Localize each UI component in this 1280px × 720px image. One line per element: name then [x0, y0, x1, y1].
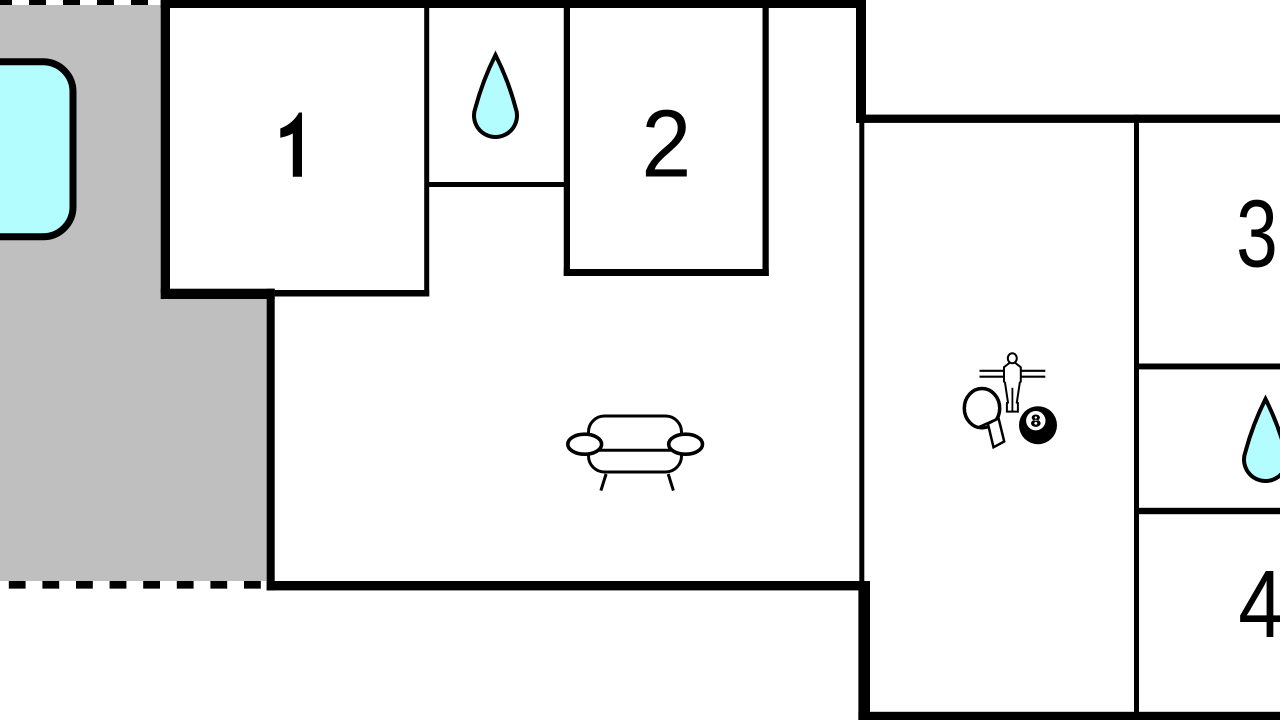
svg-text:4: 4 [1238, 550, 1280, 658]
svg-text:3: 3 [1236, 181, 1278, 288]
svg-text:2: 2 [641, 90, 691, 197]
